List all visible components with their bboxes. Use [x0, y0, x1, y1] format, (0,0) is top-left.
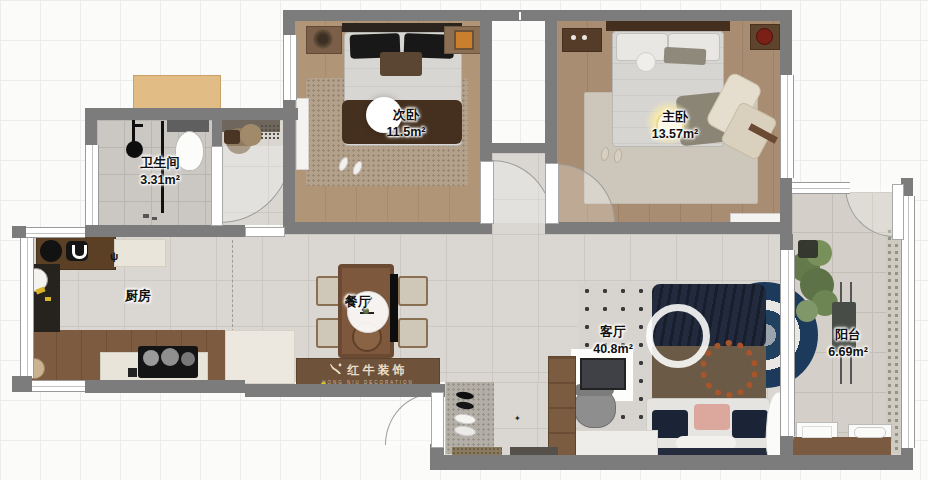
master-door-jamb: [545, 153, 557, 163]
living-bottom-wall: [430, 455, 786, 470]
bathroom-window[interactable]: [85, 145, 99, 225]
bathroom-bottom-wall: [85, 225, 245, 237]
monitor[interactable]: [580, 358, 626, 390]
window-plant-strip: [886, 228, 900, 453]
bathroom-left-wall-upper: [85, 120, 97, 145]
kitchen-corner-nw: [12, 226, 26, 238]
shower-arm-bar: [132, 124, 143, 127]
floorplan-canvas: 次卧 11.5m² 主卧 13.57m² 卫生间 3.31m²: [0, 0, 928, 480]
room-label-living[interactable]: 客厅 40.8m²: [593, 324, 633, 357]
plant-speckles: [260, 124, 280, 140]
master-left-wall: [545, 21, 557, 143]
floor-drain: [143, 214, 149, 218]
picture-frame: [454, 30, 474, 50]
dining-chair[interactable]: [398, 276, 428, 306]
kitchen-counter-cream[interactable]: [114, 239, 166, 267]
wreath-decor-white: [646, 304, 710, 368]
balcony-bottom-wall: [786, 455, 913, 470]
master-round-pillow: [636, 52, 656, 72]
wall-joint-mark: [519, 12, 521, 20]
pot: [161, 348, 179, 366]
kitchen-top-window[interactable]: [26, 227, 85, 238]
tv-bench[interactable]: [562, 430, 658, 458]
laundry-sink-basin: [854, 427, 886, 438]
drying-rack-pole: [850, 282, 852, 304]
sofa-pillow-navy: [732, 410, 768, 438]
nightstand-knob: [582, 35, 587, 40]
nightstand-knob: [571, 35, 576, 40]
floor-drain: [152, 217, 157, 220]
living-balcony-window[interactable]: [780, 250, 795, 436]
rattan-decor: [313, 29, 333, 49]
balcony-door[interactable]: [892, 184, 904, 240]
red-bowl: [756, 28, 773, 45]
entry-door-arc: [385, 393, 434, 445]
master-bottom-wall: [545, 222, 792, 234]
master-right-wall-lower: [780, 178, 792, 234]
balcony-plant: [796, 300, 818, 322]
balcony-top-window[interactable]: [792, 182, 850, 194]
vestibule-threshold: [245, 227, 285, 237]
secondary-bottom-wall: [283, 222, 492, 234]
master-door[interactable]: [545, 163, 559, 224]
laundry-counter: [793, 437, 891, 457]
kitchen-left-window[interactable]: [20, 238, 34, 378]
bull-logo-icon: [329, 361, 343, 379]
secondary-door[interactable]: [480, 161, 494, 224]
living-balcony-cap-top: [780, 234, 793, 250]
master-right-wall-upper: [780, 10, 792, 75]
watermark-text: 红牛装饰: [348, 362, 408, 379]
wreath-decor-orange: [700, 340, 758, 398]
room-label-balcony[interactable]: 阳台 6.69m²: [828, 327, 868, 360]
top-wall: [283, 10, 790, 21]
entry-door[interactable]: [431, 392, 444, 448]
food-item: [45, 297, 51, 301]
master-gray-pillow: [664, 47, 707, 65]
kitchen-sink[interactable]: [40, 240, 62, 262]
master-window[interactable]: [780, 75, 794, 178]
kitchen-corner-sw: [12, 376, 32, 392]
sofa-pillow-pink: [694, 404, 730, 430]
room-label-kitchen[interactable]: 厨房: [125, 288, 151, 305]
faucet-u-mark: [72, 245, 87, 259]
doormat: [452, 447, 502, 455]
room-label-bathroom[interactable]: 卫生间 3.31m²: [140, 155, 180, 188]
dining-bottom-wall: [245, 384, 445, 397]
secondary-bed-lumbar-pillow: [380, 52, 422, 76]
living-balcony-cap-bottom: [780, 436, 793, 458]
pot: [181, 352, 195, 366]
balcony-right-cap-bottom: [901, 448, 913, 470]
floor-mark-star: ✦: [514, 414, 521, 423]
bathroom-door[interactable]: [211, 146, 223, 226]
storage-cabinet[interactable]: [133, 75, 221, 110]
kitchen-dining-divider-line: [232, 240, 233, 332]
drying-rack-pole: [840, 282, 842, 304]
tall-cabinet[interactable]: [548, 356, 576, 458]
plant-pot: [224, 130, 240, 144]
utensil-icon: ψ: [110, 250, 118, 262]
room-label-master-bedroom[interactable]: 主卧 13.57m²: [652, 109, 699, 142]
room-label-dining[interactable]: 餐厅: [345, 294, 371, 311]
pot: [143, 350, 159, 366]
kitchen-bottom-window[interactable]: [32, 380, 85, 392]
kitchen-bottom-wall: [85, 380, 245, 393]
master-bed-headboard[interactable]: [606, 21, 730, 31]
bathroom-top-wall: [85, 108, 298, 120]
floor-plant: [240, 124, 262, 146]
doormat-dark: [510, 447, 558, 455]
secondary-door-jamb: [480, 153, 492, 161]
plant-pot: [798, 240, 818, 258]
pantry-cabinet[interactable]: [225, 330, 295, 384]
cabinet-handle: [128, 368, 137, 377]
dining-chair[interactable]: [398, 318, 428, 348]
washing-machine-lid: [802, 426, 832, 438]
secondary-window[interactable]: [283, 35, 297, 100]
secondary-right-wall: [480, 21, 492, 143]
master-nightstand-left[interactable]: [562, 28, 602, 52]
table-runner: [390, 274, 398, 342]
bathroom-right-wall-upper: [212, 120, 222, 148]
secondary-left-wall-upper: [283, 21, 295, 35]
hallway-cap-wall: [480, 143, 557, 153]
room-label-secondary-bedroom[interactable]: 次卧 11.5m²: [387, 107, 426, 140]
